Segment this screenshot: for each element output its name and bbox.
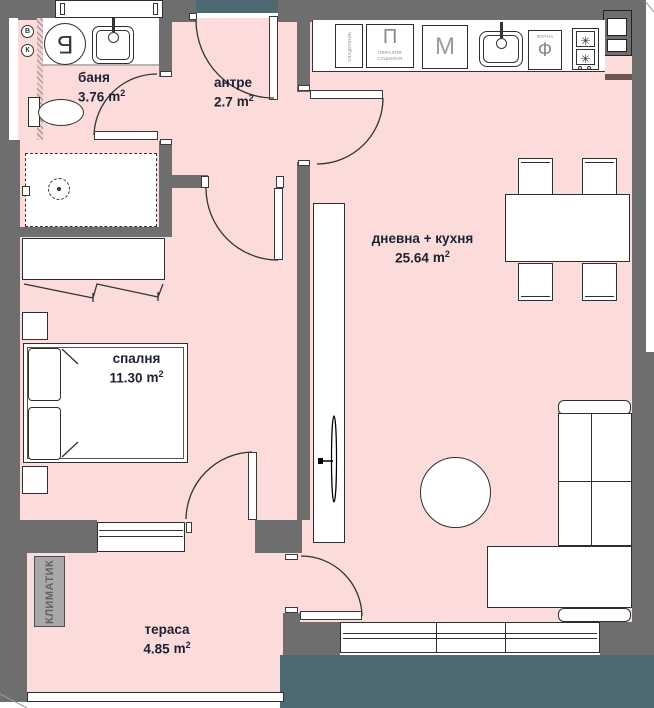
chair <box>518 263 553 301</box>
bathroom-window <box>55 0 163 18</box>
cooktop: ✳ ✳ <box>572 28 599 70</box>
faucet-stem <box>500 22 503 38</box>
room-name: тераса <box>122 622 212 638</box>
wall <box>278 0 302 22</box>
wall <box>283 613 300 655</box>
door-jamb <box>285 607 298 613</box>
door-jamb <box>285 554 298 560</box>
room-name: спалня <box>94 351 179 367</box>
bedroom-window <box>97 522 185 552</box>
bathroom-door-leaf <box>94 131 158 140</box>
window-sill <box>605 74 632 80</box>
tub-tap <box>22 186 30 196</box>
bedroom-door-leaf <box>274 188 283 260</box>
wall <box>300 622 340 655</box>
door-jamb <box>276 176 284 188</box>
room-area: 25.64m2 <box>345 247 500 266</box>
burner-symbol: ✳ <box>580 52 590 66</box>
faucet <box>108 32 119 43</box>
oven-symbol: Ф <box>538 40 552 61</box>
vent-shaft <box>603 10 632 56</box>
wall <box>297 188 310 520</box>
wall <box>0 0 55 20</box>
door-jamb <box>160 71 172 77</box>
wall <box>159 18 172 77</box>
door-jamb <box>160 139 172 145</box>
room-label-hallway: антре 2.7m2 <box>214 75 254 110</box>
washer-dryer: П ПЕРАЛНЯ СУШИЛНЯ <box>366 24 414 68</box>
living-door-leaf <box>310 90 383 99</box>
window-glass-line <box>99 530 183 537</box>
burner-symbol: ✳ <box>580 34 590 48</box>
room-area: 4.85m2 <box>122 638 212 657</box>
terrace-railing <box>27 692 284 702</box>
door-jamb <box>189 13 197 20</box>
entrance-door-leaf <box>269 16 278 100</box>
room-area: 11.30m2 <box>94 367 179 386</box>
room-name: антре <box>214 75 254 91</box>
burner: ✳ <box>576 31 595 47</box>
boiler: Б <box>44 23 86 65</box>
floor-plan: В К Б ХЛАДИЛНИК П ПЕРАЛНЯ СУШИЛНЯ М <box>0 0 654 708</box>
riser-sewer: К <box>21 44 34 57</box>
washer-symbol: П <box>367 27 413 47</box>
wall <box>0 140 20 520</box>
room-label-bedroom: спалня 11.30m2 <box>94 351 179 386</box>
faucet <box>496 38 507 49</box>
vent-opening <box>607 18 627 36</box>
wall <box>632 352 654 655</box>
cooktop-knob <box>587 66 591 70</box>
room-label-terrace: тераса 4.85m2 <box>122 622 212 657</box>
shaft-strip <box>9 18 18 140</box>
coffee-table <box>420 457 491 528</box>
room-name: баня <box>78 70 125 86</box>
riser-water: В <box>21 25 34 38</box>
room-label-living: дневна + кухня 25.64m2 <box>345 231 500 266</box>
sofa-back <box>590 413 632 546</box>
wall <box>0 18 9 140</box>
window-glass-line <box>343 633 597 639</box>
nightstand <box>22 312 48 340</box>
window-frame-mark <box>60 3 65 15</box>
door-jamb <box>298 85 310 91</box>
pillow <box>28 348 61 401</box>
wall <box>0 227 172 237</box>
window-frame-mark <box>153 3 158 15</box>
door-jamb <box>186 522 192 533</box>
room-area: 2.7m2 <box>214 91 254 110</box>
bedroom-terrace-door-leaf <box>248 452 257 520</box>
dishwasher-symbol: М <box>435 33 455 60</box>
fridge-label: ХЛАДИЛНИК <box>347 26 352 68</box>
balcony-slab <box>280 655 654 708</box>
wall <box>297 22 310 92</box>
fridge: ХЛАДИЛНИК <box>335 24 363 68</box>
wall <box>300 0 646 22</box>
sofa-seat <box>558 413 592 546</box>
kitchen-counter: ХЛАДИЛНИК П ПЕРАЛНЯ СУШИЛНЯ М ФУРНА Ф ✳ … <box>312 20 605 72</box>
burner: ✳ <box>576 49 595 65</box>
riser-sewer-label: К <box>25 47 29 54</box>
kitchen-sink <box>479 31 523 67</box>
bathtub <box>25 153 157 227</box>
ac-unit: КЛИМАТИК <box>34 556 65 627</box>
tv-cabinet <box>313 203 345 543</box>
wall <box>632 22 646 352</box>
room-area: 3.76m2 <box>78 86 125 105</box>
room-label-bathroom: баня 3.76m2 <box>78 70 125 105</box>
wall <box>159 141 172 237</box>
chair <box>518 158 553 195</box>
wardrobe <box>22 238 165 280</box>
wall <box>255 520 302 553</box>
room-name: дневна + кухня <box>345 231 500 247</box>
chair <box>582 263 617 301</box>
washer-label-2: СУШИЛНЯ <box>367 56 413 62</box>
boiler-label: Б <box>57 24 73 63</box>
nightstand <box>22 466 48 494</box>
cooktop-knob <box>578 66 582 70</box>
wall <box>0 520 97 553</box>
riser-water-label: В <box>25 28 30 35</box>
dining-table <box>505 194 630 262</box>
faucet-stem <box>112 18 115 32</box>
drain-dot <box>57 187 61 191</box>
bathroom-sink <box>92 26 134 64</box>
pillow <box>28 407 61 460</box>
chair <box>582 158 617 195</box>
door-jamb <box>298 160 310 166</box>
living-window <box>340 622 600 653</box>
sofa-chaise <box>487 546 632 608</box>
dishwasher: М <box>422 25 468 69</box>
entrance-threshold <box>196 0 278 13</box>
sofa-armrest <box>558 608 631 622</box>
living-terrace-door-leaf <box>300 611 362 620</box>
vent-opening <box>607 39 627 52</box>
corner-line <box>645 1 654 12</box>
oven: ФУРНА Ф <box>528 30 562 70</box>
ac-label: КЛИМАТИК <box>44 558 56 626</box>
door-jamb <box>201 176 209 188</box>
